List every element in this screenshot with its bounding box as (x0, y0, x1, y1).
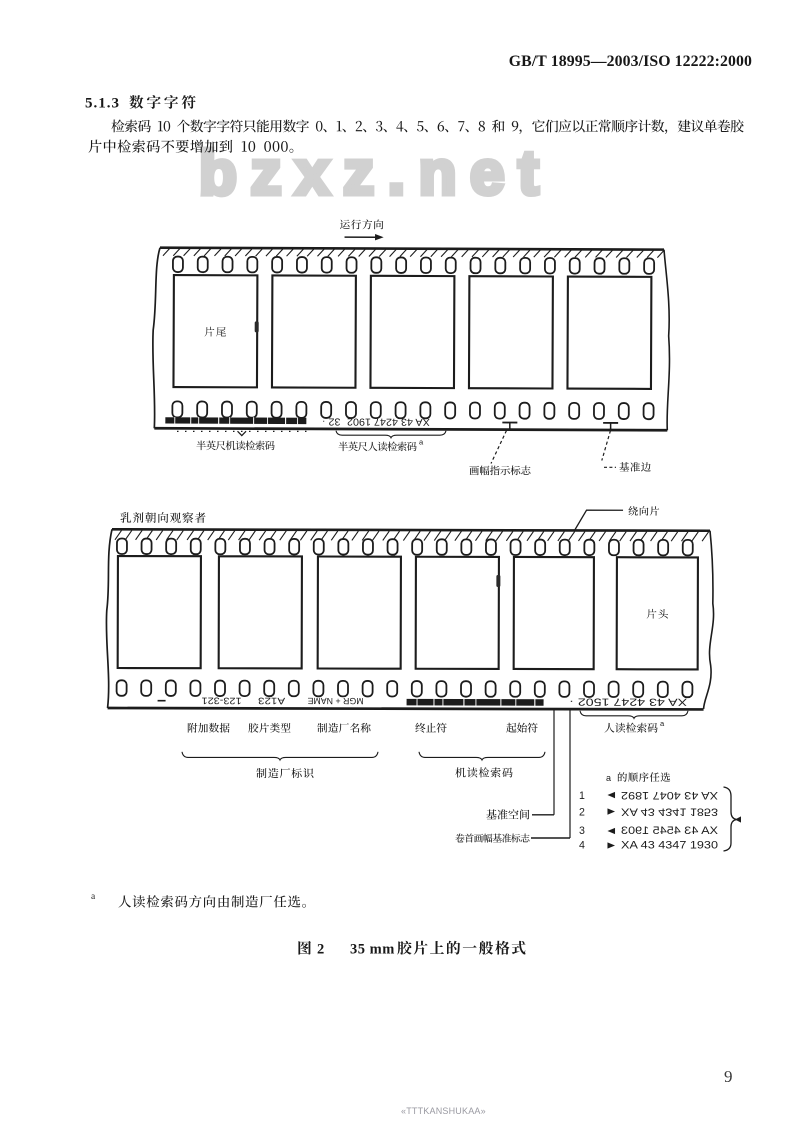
svg-text:XA 43 4247 1902 32 ·: XA 43 4247 1902 32 · (322, 415, 430, 426)
svg-text:1: 1 (579, 790, 585, 802)
svg-text:a: a (419, 438, 424, 447)
svg-text:A123: A123 (258, 696, 285, 707)
svg-text:123-321: 123-321 (202, 696, 242, 707)
svg-text:a: a (606, 773, 611, 783)
svg-text:XA 43 4545 1903 ►: XA 43 4545 1903 ► (605, 825, 718, 837)
svg-text:4: 4 (579, 840, 585, 852)
svg-text:2: 2 (579, 807, 585, 819)
svg-text:XA 43 4247 1502 ·: XA 43 4247 1502 · (569, 696, 687, 707)
svg-text:► XA 43 4347 1930: ► XA 43 4347 1930 (605, 840, 718, 852)
svg-text:3: 3 (579, 825, 585, 837)
svg-text:► XA 43 4341 1853: ► XA 43 4341 1853 (605, 805, 718, 817)
svg-text:MGR + NAME: MGR + NAME (308, 696, 364, 706)
svg-text:a: a (660, 719, 665, 728)
svg-text:XA 43 4047 1892 ►: XA 43 4047 1892 ► (605, 789, 718, 801)
